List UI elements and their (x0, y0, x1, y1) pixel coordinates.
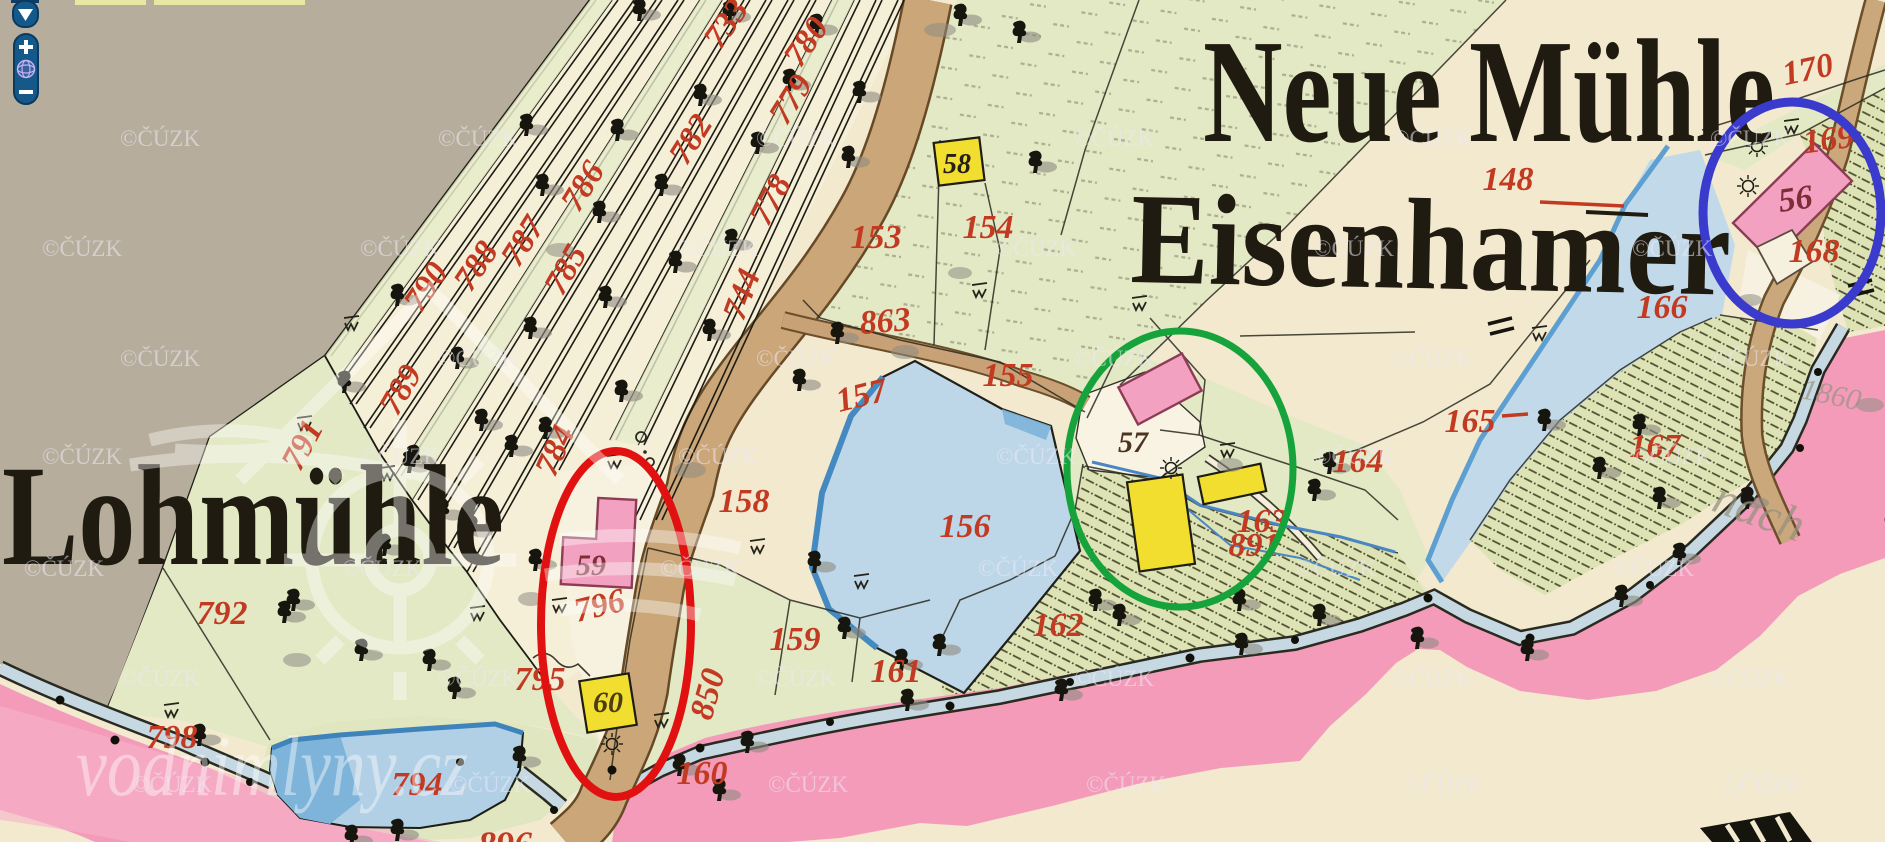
svg-text:©ČÚZK: ©ČÚZK (756, 125, 836, 151)
svg-text:©ČÚZK: ©ČÚZK (1392, 665, 1472, 691)
svg-text:©ČÚZK: ©ČÚZK (120, 665, 200, 691)
svg-text:©ČÚZK: ©ČÚZK (1392, 125, 1472, 151)
svg-text:©ČÚZK: ©ČÚZK (360, 443, 440, 469)
svg-text:©ČÚZK: ©ČÚZK (1710, 345, 1790, 371)
svg-text:©ČÚZK: ©ČÚZK (996, 443, 1076, 469)
svg-text:56: 56 (1776, 179, 1815, 220)
svg-text:©ČÚZK: ©ČÚZK (438, 125, 518, 151)
svg-text:©ČÚZK: ©ČÚZK (1074, 345, 1154, 371)
svg-text:©ČÚZK: ©ČÚZK (42, 235, 122, 261)
svg-text:©ČÚZK: ©ČÚZK (1722, 771, 1802, 797)
svg-text:vodnimlyny.cz: vodnimlyny.cz (76, 718, 468, 814)
svg-text:153: 153 (851, 219, 902, 256)
svg-text:162: 162 (1033, 607, 1084, 644)
svg-text:896: 896 (478, 824, 532, 842)
svg-text:60: 60 (593, 686, 623, 719)
svg-text:©ČÚZK: ©ČÚZK (1632, 235, 1712, 261)
svg-text:©ČÚZK: ©ČÚZK (450, 771, 530, 797)
svg-text:166: 166 (1637, 289, 1688, 326)
svg-text:©ČÚZK: ©ČÚZK (438, 665, 518, 691)
svg-text:©ČÚZK: ©ČÚZK (132, 771, 212, 797)
svg-text:©ČÚZK: ©ČÚZK (1392, 345, 1472, 371)
svg-text:©ČÚZK: ©ČÚZK (756, 665, 836, 691)
svg-text:©ČÚZK: ©ČÚZK (1632, 443, 1712, 469)
svg-text:155: 155 (983, 357, 1034, 394)
svg-text:©ČÚZK: ©ČÚZK (120, 125, 200, 151)
svg-text:158: 158 (719, 483, 770, 520)
svg-text:©ČÚZK: ©ČÚZK (438, 345, 518, 371)
svg-text:©ČÚZK: ©ČÚZK (1710, 125, 1790, 151)
svg-text:148: 148 (1483, 161, 1534, 198)
svg-text:©ČÚZK: ©ČÚZK (342, 555, 422, 581)
svg-text:©ČÚZK: ©ČÚZK (1074, 665, 1154, 691)
svg-text:©ČÚZK: ©ČÚZK (660, 555, 740, 581)
svg-text:©ČÚZK: ©ČÚZK (1404, 771, 1484, 797)
svg-text:©ČÚZK: ©ČÚZK (1614, 555, 1694, 581)
svg-text:©ČÚZK: ©ČÚZK (678, 443, 758, 469)
svg-text:159: 159 (770, 621, 821, 658)
svg-text:156: 156 (940, 508, 991, 545)
svg-text:©ČÚZK: ©ČÚZK (678, 235, 758, 261)
svg-text:©ČÚZK: ©ČÚZK (360, 235, 440, 261)
svg-text:©ČÚZK: ©ČÚZK (1086, 771, 1166, 797)
svg-text:©ČÚZK: ©ČÚZK (1314, 235, 1394, 261)
svg-text:57: 57 (1118, 426, 1149, 459)
svg-text:©ČÚZK: ©ČÚZK (24, 555, 104, 581)
svg-text:©ČÚZK: ©ČÚZK (1074, 125, 1154, 151)
svg-text:168: 168 (1789, 233, 1840, 270)
svg-text:160: 160 (677, 755, 728, 792)
svg-text:©ČÚZK: ©ČÚZK (978, 555, 1058, 581)
svg-text:Neue Mühle: Neue Mühle (1203, 10, 1775, 174)
svg-text:863: 863 (858, 301, 912, 342)
svg-text:58: 58 (943, 149, 971, 180)
svg-text:©ČÚZK: ©ČÚZK (1296, 555, 1376, 581)
svg-text:©ČÚZK: ©ČÚZK (42, 443, 122, 469)
svg-text:©ČÚZK: ©ČÚZK (1314, 443, 1394, 469)
svg-text:©ČÚZK: ©ČÚZK (120, 345, 200, 371)
svg-text:©ČÚZK: ©ČÚZK (756, 345, 836, 371)
svg-text:792: 792 (197, 595, 248, 632)
svg-text:©ČÚZK: ©ČÚZK (768, 771, 848, 797)
svg-text:165: 165 (1445, 403, 1496, 440)
svg-text:©ČÚZK: ©ČÚZK (996, 235, 1076, 261)
svg-text:©ČÚZK: ©ČÚZK (1710, 665, 1790, 691)
svg-text:161: 161 (871, 653, 922, 690)
